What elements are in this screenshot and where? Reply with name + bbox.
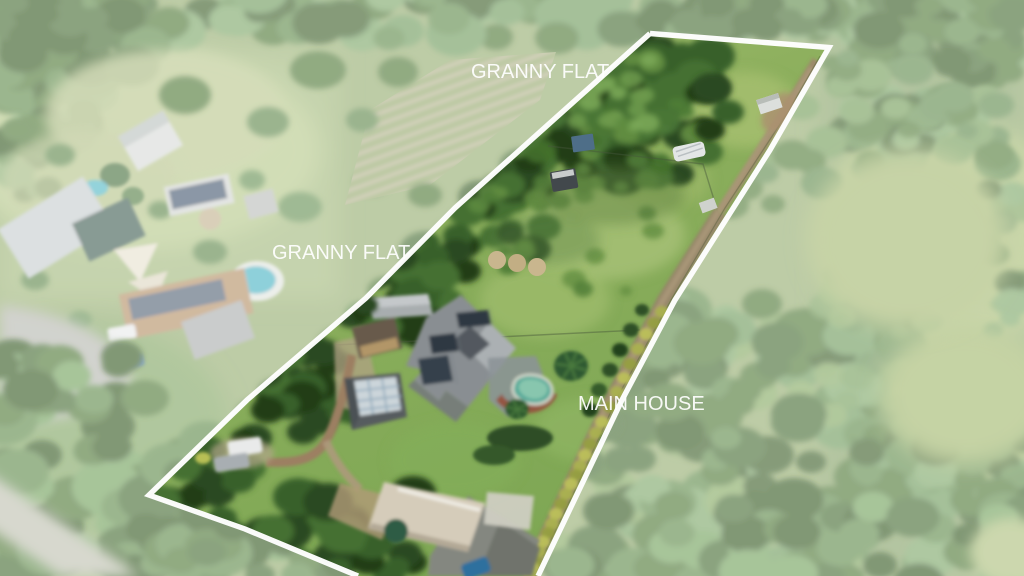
svg-text:GRANNY FLAT: GRANNY FLAT <box>471 61 609 83</box>
svg-text:GRANNY FLAT: GRANNY FLAT <box>272 242 410 264</box>
svg-text:MAIN HOUSE: MAIN HOUSE <box>578 393 705 415</box>
